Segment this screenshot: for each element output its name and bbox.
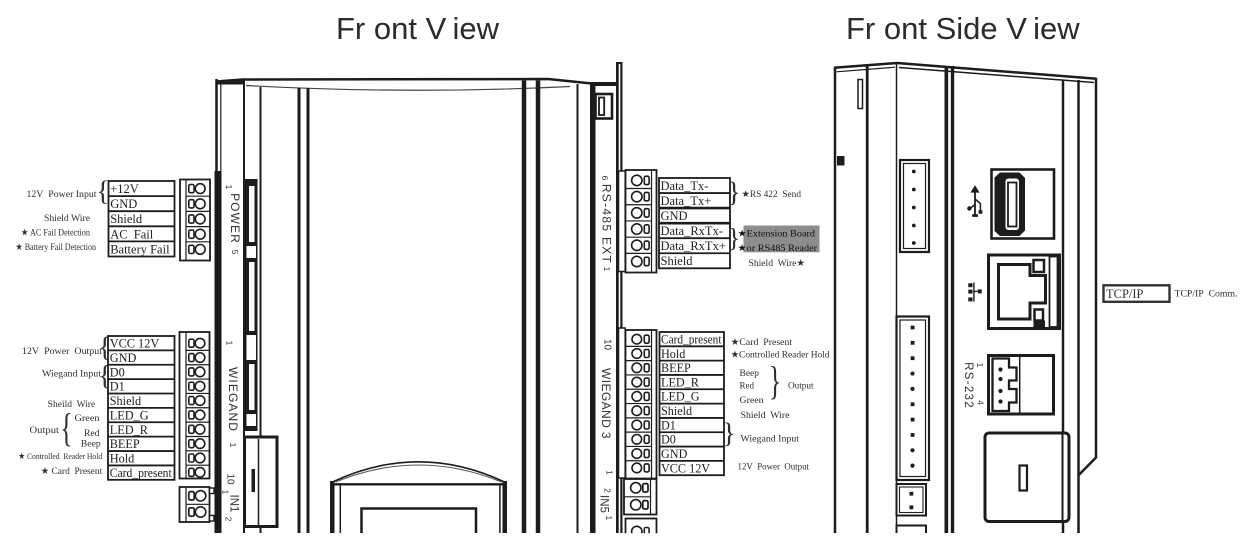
svg-text:Beep: Beep: [740, 369, 760, 379]
svg-text:{: {: [98, 361, 111, 392]
svg-text:VCC 12V: VCC 12V: [110, 336, 160, 350]
svg-text:}: }: [727, 178, 740, 209]
svg-text:Data_Tx-: Data_Tx-: [661, 179, 709, 193]
svg-text:TCP/IP: TCP/IP: [1106, 287, 1144, 301]
svg-text:RS-485 EXT: RS-485 EXT: [600, 184, 614, 264]
svg-text:GND: GND: [110, 351, 137, 365]
svg-text:Fr ont V iew: Fr ont V iew: [336, 11, 500, 46]
svg-text:GND: GND: [661, 447, 688, 461]
svg-text:+12V: +12V: [110, 182, 139, 196]
svg-text:GND: GND: [661, 209, 688, 223]
svg-text:2: 2: [224, 517, 234, 522]
svg-text:Card_present: Card_present: [110, 466, 173, 480]
svg-text:Hold: Hold: [661, 347, 685, 361]
svg-text:1: 1: [225, 341, 235, 346]
svg-text:GND: GND: [110, 197, 137, 211]
svg-text:BEEP: BEEP: [661, 361, 691, 375]
svg-text:Data_RxTx-: Data_RxTx-: [661, 224, 723, 238]
svg-text:BEEP: BEEP: [110, 437, 140, 451]
svg-text:D1: D1: [661, 418, 676, 432]
svg-text:Shield Wire: Shield Wire: [741, 411, 790, 421]
svg-text:Shield: Shield: [110, 394, 141, 408]
svg-text:4: 4: [976, 400, 986, 405]
svg-text:}: }: [722, 419, 735, 450]
svg-text:Wiegand Input: Wiegand Input: [741, 435, 800, 445]
svg-text:IN5: IN5: [598, 495, 610, 513]
svg-text:1: 1: [604, 515, 614, 520]
svg-text:Green: Green: [75, 414, 100, 424]
svg-text:6: 6: [600, 176, 610, 181]
svg-text:★Extension Board: ★Extension Board: [738, 228, 816, 239]
svg-text:1: 1: [605, 470, 615, 475]
svg-text:LED_G: LED_G: [661, 390, 700, 404]
svg-text:1: 1: [975, 363, 985, 368]
svg-text:Shield: Shield: [661, 254, 694, 268]
svg-text:{: {: [96, 177, 109, 208]
svg-text:Beep: Beep: [81, 440, 101, 450]
svg-text:IN1: IN1: [228, 495, 240, 513]
svg-text:Red: Red: [84, 429, 100, 439]
svg-text:Output: Output: [30, 426, 60, 436]
svg-text:Output: Output: [788, 382, 814, 392]
svg-text:D0: D0: [110, 365, 125, 379]
svg-text:VCC 12V: VCC 12V: [661, 461, 710, 475]
svg-text:D0: D0: [661, 433, 676, 447]
svg-text:LED_R: LED_R: [110, 423, 149, 437]
svg-text:TCP/IP Comm.: TCP/IP Comm.: [1175, 289, 1238, 299]
svg-text:★ Card Present: ★ Card Present: [41, 466, 103, 477]
svg-text:12V Power Output: 12V Power Output: [22, 347, 102, 357]
svg-text:Data_Tx+: Data_Tx+: [661, 194, 712, 208]
svg-text:Shield: Shield: [110, 212, 143, 226]
svg-text:POWER: POWER: [228, 193, 242, 244]
svg-text:Data_RxTx+: Data_RxTx+: [661, 239, 726, 253]
svg-text:WIEGAND 3: WIEGAND 3: [599, 368, 613, 439]
svg-text:★ Battery Fail Detection: ★ Battery Fail Detection: [16, 242, 97, 253]
svg-text:★ Controlled Reader Hold: ★ Controlled Reader Hold: [18, 451, 103, 461]
svg-text:2: 2: [603, 488, 613, 493]
svg-text:LED_G: LED_G: [110, 408, 149, 422]
svg-text:★RS 422 Send: ★RS 422 Send: [742, 189, 802, 200]
svg-text:LED_R: LED_R: [661, 375, 700, 389]
svg-text:WIEGAND: WIEGAND: [226, 367, 240, 432]
svg-text:5: 5: [230, 250, 240, 255]
svg-text:12V Power Output: 12V Power Output: [738, 463, 810, 473]
svg-text:Hold: Hold: [110, 452, 135, 466]
svg-text:}: }: [769, 360, 781, 404]
svg-text:{: {: [60, 407, 72, 451]
svg-text:★ AC Fail Detection: ★ AC Fail Detection: [21, 227, 90, 238]
svg-text:Battery Fail: Battery Fail: [110, 242, 170, 256]
svg-text:RS-232: RS-232: [962, 362, 974, 409]
svg-text:1: 1: [224, 185, 234, 190]
svg-text:10: 10: [602, 339, 613, 351]
svg-text:12V Power Input: 12V Power Input: [27, 190, 97, 200]
svg-text:★or RS485 Reader: ★or RS485 Reader: [738, 243, 818, 254]
svg-text:Fr ont Side V iew: Fr ont Side V iew: [846, 11, 1080, 46]
svg-text:Shield Wire: Shield Wire: [44, 214, 90, 224]
svg-text:Shield Wire★: Shield Wire★: [749, 258, 806, 269]
svg-text:Shield: Shield: [661, 404, 692, 418]
svg-text:★Card Present: ★Card Present: [731, 337, 793, 348]
svg-text:1: 1: [602, 267, 612, 272]
svg-text:1: 1: [228, 443, 238, 448]
svg-text:Green: Green: [740, 396, 764, 406]
svg-text:Wiegand Input: Wiegand Input: [42, 369, 101, 379]
svg-text:Card_present: Card_present: [661, 332, 722, 346]
svg-text:D1: D1: [110, 380, 125, 394]
svg-text:{: {: [98, 333, 111, 364]
svg-text:AC Fail: AC Fail: [110, 227, 154, 241]
svg-text:10: 10: [225, 473, 236, 485]
svg-text:Red: Red: [740, 382, 755, 392]
